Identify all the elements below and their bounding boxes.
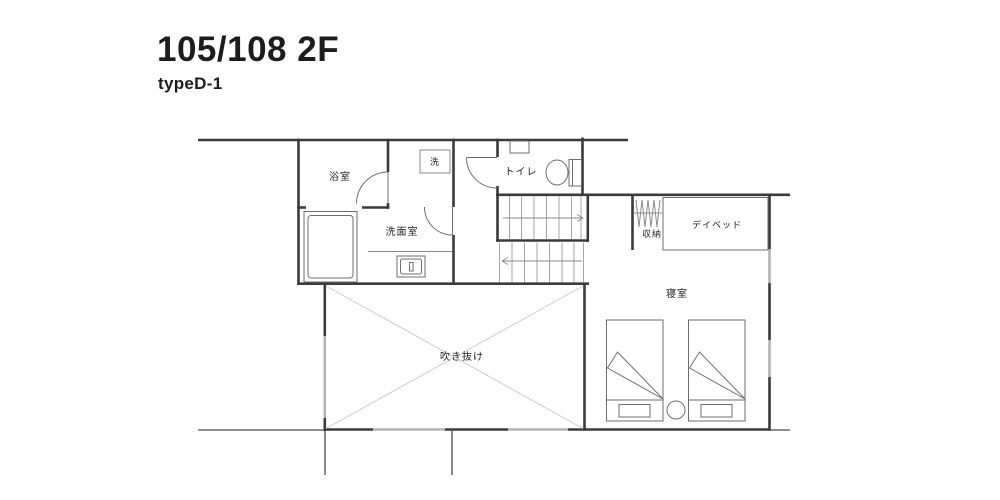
walls (198, 138, 790, 432)
storage-label: 収納 (642, 228, 662, 239)
bed-icon (689, 320, 746, 421)
doors (357, 158, 498, 236)
daybed-label: デイベッド (692, 219, 742, 230)
washroom-door-icon (425, 207, 453, 235)
sink-icon (397, 256, 425, 277)
bathroom-label: 浴室 (329, 170, 351, 183)
toilet-label: トイレ (505, 167, 538, 178)
bathtub-icon (304, 212, 357, 283)
floor-plan-page: 105/108 2F typeD-1 (0, 0, 1000, 500)
side-table-icon (667, 401, 685, 419)
door-swing-arc (467, 158, 498, 189)
void-label: 吹き抜け (440, 350, 484, 363)
floor-plan-drawing: 浴室 洗 トイレ 洗面室 収納 デイベッド 寝室 吹き抜け (0, 0, 1000, 500)
bed-icon (607, 320, 664, 421)
hanger-rod-icon (634, 200, 663, 227)
bathroom-door-icon (357, 172, 389, 204)
fixtures (304, 141, 768, 421)
room-labels: 浴室 洗 トイレ 洗面室 収納 デイベッド 寝室 吹き抜け (329, 156, 742, 363)
door-swing-arc (357, 172, 389, 204)
washer-label: 洗 (430, 156, 440, 167)
outline-thin (198, 430, 790, 475)
toilet-shelf (510, 141, 529, 153)
door-swing-arc (425, 207, 453, 235)
washroom-label: 洗面室 (386, 225, 419, 238)
toilet-fixture-icon (546, 160, 582, 187)
toilet-door-icon (467, 158, 498, 189)
stair-down-arrow (502, 258, 582, 265)
bedroom-label: 寝室 (666, 287, 688, 300)
